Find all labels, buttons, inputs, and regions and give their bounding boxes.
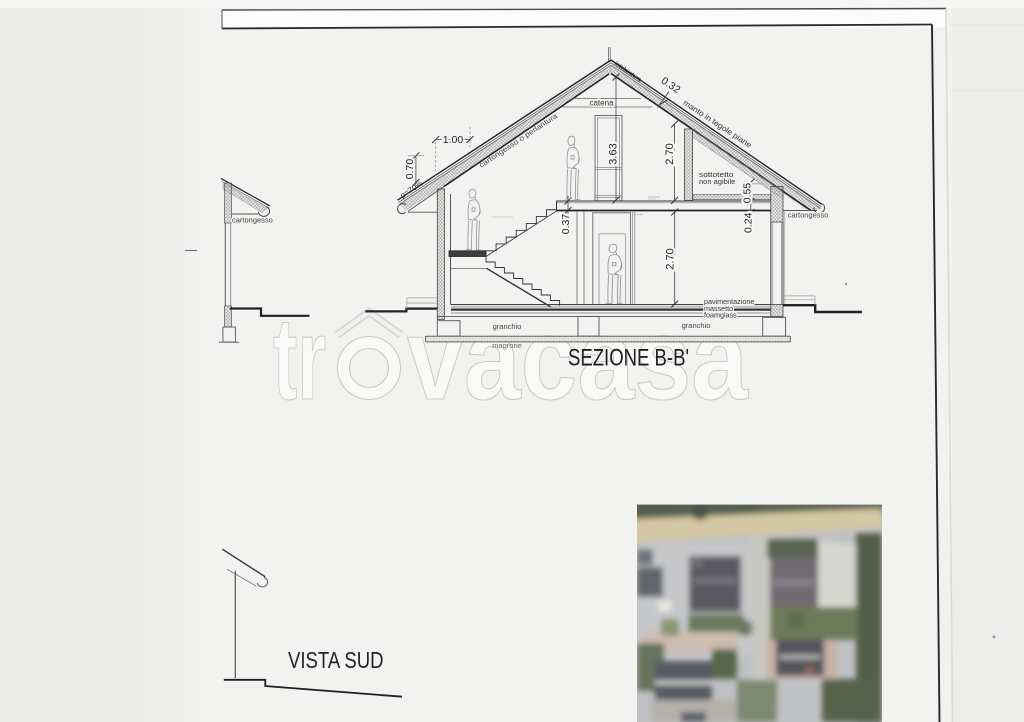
- svg-text:granchio: granchio: [493, 322, 522, 331]
- svg-text:0.70: 0.70: [404, 159, 416, 180]
- svg-text:catena: catena: [589, 99, 614, 108]
- svg-text:tr: tr: [273, 293, 326, 424]
- svg-text:1.00: 1.00: [443, 134, 464, 146]
- svg-text:2.70: 2.70: [664, 143, 676, 164]
- svg-text:foamglass: foamglass: [704, 311, 737, 320]
- svg-text:0.37: 0.37: [560, 214, 572, 235]
- svg-text:granchio: granchio: [682, 321, 711, 330]
- svg-text:non agibile: non agibile: [699, 177, 735, 186]
- svg-text:magrone: magrone: [492, 341, 522, 350]
- svg-text:cartongesso: cartongesso: [232, 216, 273, 225]
- svg-text:0.24: 0.24: [742, 212, 754, 233]
- svg-text:3.63: 3.63: [608, 143, 620, 164]
- svg-text:cartongesso: cartongesso: [788, 211, 829, 220]
- svg-text:SEZIONE B-B': SEZIONE B-B': [568, 345, 689, 372]
- svg-text:2.70: 2.70: [665, 248, 677, 269]
- svg-text:0.55: 0.55: [741, 183, 753, 204]
- svg-text:VISTA SUD: VISTA SUD: [288, 647, 384, 673]
